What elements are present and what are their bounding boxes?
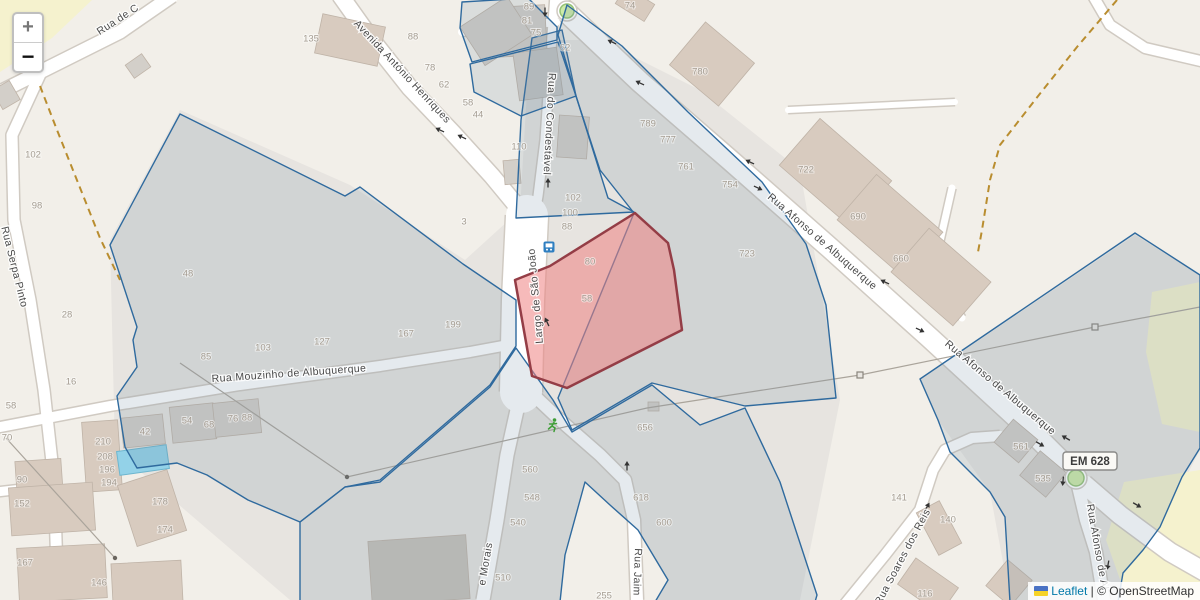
leaflet-link[interactable]: Leaflet <box>1051 584 1087 598</box>
house-number: 199 <box>445 320 461 331</box>
ukraine-flag-icon <box>1034 586 1048 596</box>
house-number: 600 <box>656 518 672 529</box>
zoom-in-button[interactable]: + <box>14 14 42 42</box>
house-number: 135 <box>303 34 319 45</box>
house-number: 88 <box>562 222 573 233</box>
power-pole-icon <box>113 556 117 560</box>
house-number: 100 <box>562 208 578 219</box>
house-number: 167 <box>398 329 414 340</box>
bus-stop-icon <box>544 242 555 253</box>
house-number: 208 <box>97 452 113 463</box>
house-number: 16 <box>66 377 77 388</box>
house-number: 561 <box>1013 442 1029 453</box>
house-number: 48 <box>183 269 194 280</box>
house-number: 88 <box>408 32 419 43</box>
house-number: 141 <box>891 493 907 504</box>
house-number: 560 <box>522 465 538 476</box>
house-number: 76 <box>228 414 239 425</box>
house-number: 28 <box>62 310 73 321</box>
house-number: 789 <box>640 119 656 130</box>
house-number: 690 <box>850 212 866 223</box>
map-svg: 1358878625844110389817562747807897777617… <box>0 0 1200 600</box>
zoom-control: + − <box>12 12 44 73</box>
house-number: 58 <box>6 401 17 412</box>
house-number: 54 <box>182 416 193 427</box>
house-number: 780 <box>692 67 708 78</box>
zoom-out-button[interactable]: − <box>14 42 42 71</box>
house-number: 255 <box>596 591 612 600</box>
power-tower-icon <box>857 372 863 378</box>
house-number: 68 <box>204 420 215 431</box>
house-number: 178 <box>152 497 168 508</box>
house-number: 210 <box>95 437 111 448</box>
house-number: 102 <box>565 193 581 204</box>
house-number: 722 <box>798 165 814 176</box>
house-number: 88 <box>242 413 253 424</box>
house-number: 127 <box>314 337 330 348</box>
attribution-separator: | <box>1091 584 1094 598</box>
house-number: 89 <box>524 2 535 13</box>
house-number: 98 <box>32 201 43 212</box>
house-number: 152 <box>14 499 30 510</box>
house-number: 660 <box>893 254 909 265</box>
house-number: 90 <box>17 475 28 486</box>
house-number: 140 <box>940 515 956 526</box>
house-number: 754 <box>722 180 738 191</box>
house-number: 618 <box>633 493 649 504</box>
house-number: 194 <box>101 478 117 489</box>
attribution-bar: Leaflet | © OpenStreetMap <box>1028 582 1200 600</box>
house-number: 510 <box>495 573 511 584</box>
street-label: Rua Jaim <box>630 548 644 596</box>
house-number: 70 <box>2 433 13 444</box>
building <box>17 544 108 600</box>
house-number: 75 <box>531 28 542 39</box>
house-number: 3 <box>461 217 466 228</box>
house-number: 174 <box>157 525 173 536</box>
house-number: 723 <box>739 249 755 260</box>
house-number: 777 <box>660 135 676 146</box>
house-number: 62 <box>560 43 571 54</box>
house-number: 535 <box>1035 474 1051 485</box>
building <box>111 560 183 600</box>
house-number: 196 <box>99 465 115 476</box>
house-number: 102 <box>25 150 41 161</box>
house-number: 42 <box>140 427 151 438</box>
house-number: 110 <box>511 142 526 153</box>
house-number: 58 <box>582 294 593 305</box>
house-number: 85 <box>201 352 212 363</box>
house-number: 80 <box>585 257 596 268</box>
map-canvas[interactable]: 1358878625844110389817562747807897777617… <box>0 0 1200 600</box>
house-number: 548 <box>524 493 540 504</box>
house-number: 540 <box>510 518 526 529</box>
house-number: 74 <box>625 1 636 12</box>
road-shield: EM 628 <box>1063 452 1117 470</box>
house-number: 44 <box>473 110 484 121</box>
house-number: 62 <box>439 80 450 91</box>
house-number: 103 <box>255 343 271 354</box>
house-number: 656 <box>637 423 653 434</box>
house-number: 78 <box>425 63 436 74</box>
house-number: 761 <box>678 162 694 173</box>
house-number: 58 <box>463 98 474 109</box>
osm-copyright-link[interactable]: © OpenStreetMap <box>1097 584 1194 598</box>
road-shield-label: EM 628 <box>1070 456 1110 468</box>
house-number: 116 <box>917 589 932 600</box>
house-number: 81 <box>522 16 533 27</box>
house-number: 146 <box>91 578 107 589</box>
house-number: 167 <box>17 558 33 569</box>
